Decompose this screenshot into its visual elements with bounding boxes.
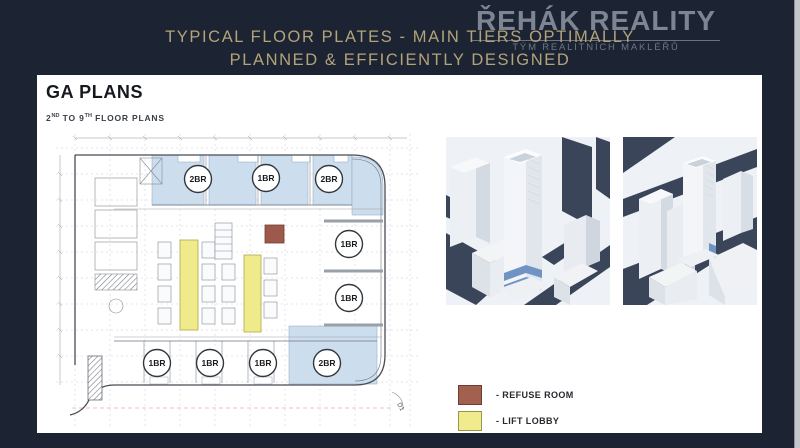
unit-label: 1BR <box>197 350 224 377</box>
legend-label: - REFUSE ROOM <box>496 390 574 400</box>
floor-range-label: 2ND TO 9TH FLOOR PLANS <box>46 113 165 123</box>
unit-label: 2BR <box>185 166 212 193</box>
svg-text:2BR: 2BR <box>320 174 337 184</box>
content-panel: GA PLANS 2ND TO 9TH FLOOR PLANS <box>37 75 762 433</box>
lift-lobby-swatch <box>458 411 482 431</box>
refuse-room-region <box>265 225 284 243</box>
slide-title-line2: PLANNED & EFFICIENTLY DESIGNED <box>88 49 712 72</box>
svg-text:1BR: 1BR <box>201 358 218 368</box>
slide-title: TYPICAL FLOOR PLATES - MAIN TIERS OPTIMA… <box>88 26 712 72</box>
slide-title-line1: TYPICAL FLOOR PLATES - MAIN TIERS OPTIMA… <box>88 26 712 49</box>
unit-label: 2BR <box>314 350 341 377</box>
unit-label: 1BR <box>336 285 363 312</box>
unit-label: 2BR <box>316 166 343 193</box>
render2-hero-tower <box>677 156 719 267</box>
svg-text:1BR: 1BR <box>257 173 274 183</box>
refuse-room-swatch <box>458 385 482 405</box>
unit-label: 1BR <box>144 350 171 377</box>
stair-hatch <box>88 356 102 400</box>
slide: TYPICAL FLOOR PLATES - MAIN TIERS OPTIMA… <box>0 0 800 448</box>
building-render-1 <box>446 137 610 305</box>
plan-legend: - REFUSE ROOM - LIFT LOBBY <box>458 385 574 437</box>
unit-label: 1BR <box>250 350 277 377</box>
floor-plan: 2BR 1BR 2BR 1BR 1BR 1BR 1BR 1BR 2BR D1 <box>52 130 424 432</box>
building-render-2 <box>623 137 757 305</box>
legend-item-lift-lobby: - LIFT LOBBY <box>458 411 574 431</box>
floor-to-suffix: TH <box>85 113 92 119</box>
unit-label: 1BR <box>253 165 280 192</box>
floor-rest: FLOOR PLANS <box>92 113 165 123</box>
unit-label: 1BR <box>336 231 363 258</box>
svg-text:2BR: 2BR <box>318 358 335 368</box>
svg-text:1BR: 1BR <box>340 293 357 303</box>
svg-text:1BR: 1BR <box>148 358 165 368</box>
svg-text:1BR: 1BR <box>254 358 271 368</box>
section-heading: GA PLANS <box>46 82 143 103</box>
svg-text:1BR: 1BR <box>340 239 357 249</box>
legend-item-refuse-room: - REFUSE ROOM <box>458 385 574 405</box>
svg-text:2BR: 2BR <box>189 174 206 184</box>
window-edge <box>794 0 800 448</box>
legend-label: - LIFT LOBBY <box>496 416 559 426</box>
floor-middle: TO <box>59 113 79 123</box>
corner-label: D1 <box>395 402 405 413</box>
